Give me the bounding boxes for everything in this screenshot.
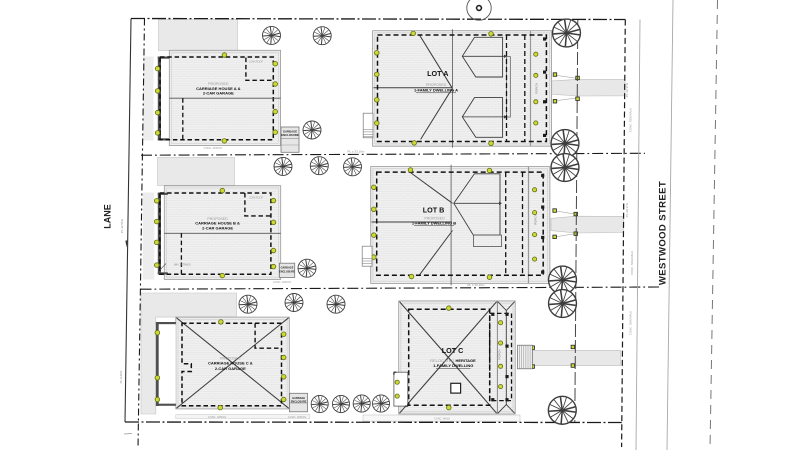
svg-text:2-CAR GARAGE: 2-CAR GARAGE	[202, 225, 233, 230]
svg-text:2-CAR GARAGE: 2-CAR GARAGE	[203, 91, 234, 96]
svg-text:CONC. APRON: CONC. APRON	[273, 280, 291, 284]
svg-text:PL 30.17m: PL 30.17m	[625, 82, 629, 97]
svg-text:CONC. APRON: CONC. APRON	[204, 146, 222, 150]
svg-text:LOW ROOF: LOW ROOF	[249, 60, 264, 64]
svg-text:MIN. SETBACK: MIN. SETBACK	[174, 263, 191, 266]
svg-text:PL ± 33.16m: PL ± 33.16m	[468, 283, 485, 287]
svg-text:CONC. SIDEWALK: CONC. SIDEWALK	[629, 108, 633, 132]
svg-text:CONC. APRON: CONC. APRON	[288, 415, 306, 419]
svg-text:CONC. SIDEWALK: CONC. SIDEWALK	[630, 251, 634, 275]
svg-text:ENCLOSURE: ENCLOSURE	[281, 133, 299, 137]
svg-text:PL 9.60m: PL 9.60m	[119, 370, 123, 383]
svg-text:GARBAGE: GARBAGE	[281, 267, 294, 270]
svg-text:PORCH: PORCH	[534, 214, 538, 225]
svg-text:CARRIAGE HOUSE C &: CARRIAGE HOUSE C &	[208, 361, 253, 366]
svg-text:CONC. WALK: CONC. WALK	[434, 417, 451, 421]
svg-text:CONC. SIDEWALK: CONC. SIDEWALK	[629, 311, 633, 335]
svg-text:PL 32.55m: PL 32.55m	[120, 218, 124, 233]
svg-text:1-FAMILY DWELLING: 1-FAMILY DWELLING	[433, 363, 473, 368]
svg-text:2-CAR GARAGE: 2-CAR GARAGE	[215, 366, 246, 371]
svg-text:PORCH: PORCH	[535, 83, 539, 94]
svg-text:PORCH: PORCH	[497, 349, 501, 359]
svg-text:LANE: LANE	[103, 204, 113, 229]
svg-text:LOT B: LOT B	[423, 205, 445, 214]
svg-text:LOT C: LOT C	[442, 346, 464, 355]
svg-text:1-FAMILY DWELLING A: 1-FAMILY DWELLING A	[414, 87, 458, 92]
svg-text:WESTWOOD STREET: WESTWOOD STREET	[658, 181, 669, 285]
svg-text:ENCLOSURE: ENCLOSURE	[291, 401, 307, 404]
svg-text:PL 30.17m: PL 30.17m	[625, 202, 629, 217]
svg-text:ENCLOSURE: ENCLOSURE	[279, 270, 295, 273]
svg-text:PL ± 33.16m: PL ± 33.16m	[348, 150, 365, 154]
svg-text:CONC. APRON: CONC. APRON	[208, 415, 226, 419]
svg-text:1-FAMILY DWELLING B: 1-FAMILY DWELLING B	[412, 220, 456, 225]
svg-text:LOT A: LOT A	[427, 69, 448, 78]
svg-text:LOW ROOF: LOW ROOF	[249, 195, 264, 199]
svg-text:GARBAGE: GARBAGE	[292, 397, 305, 400]
